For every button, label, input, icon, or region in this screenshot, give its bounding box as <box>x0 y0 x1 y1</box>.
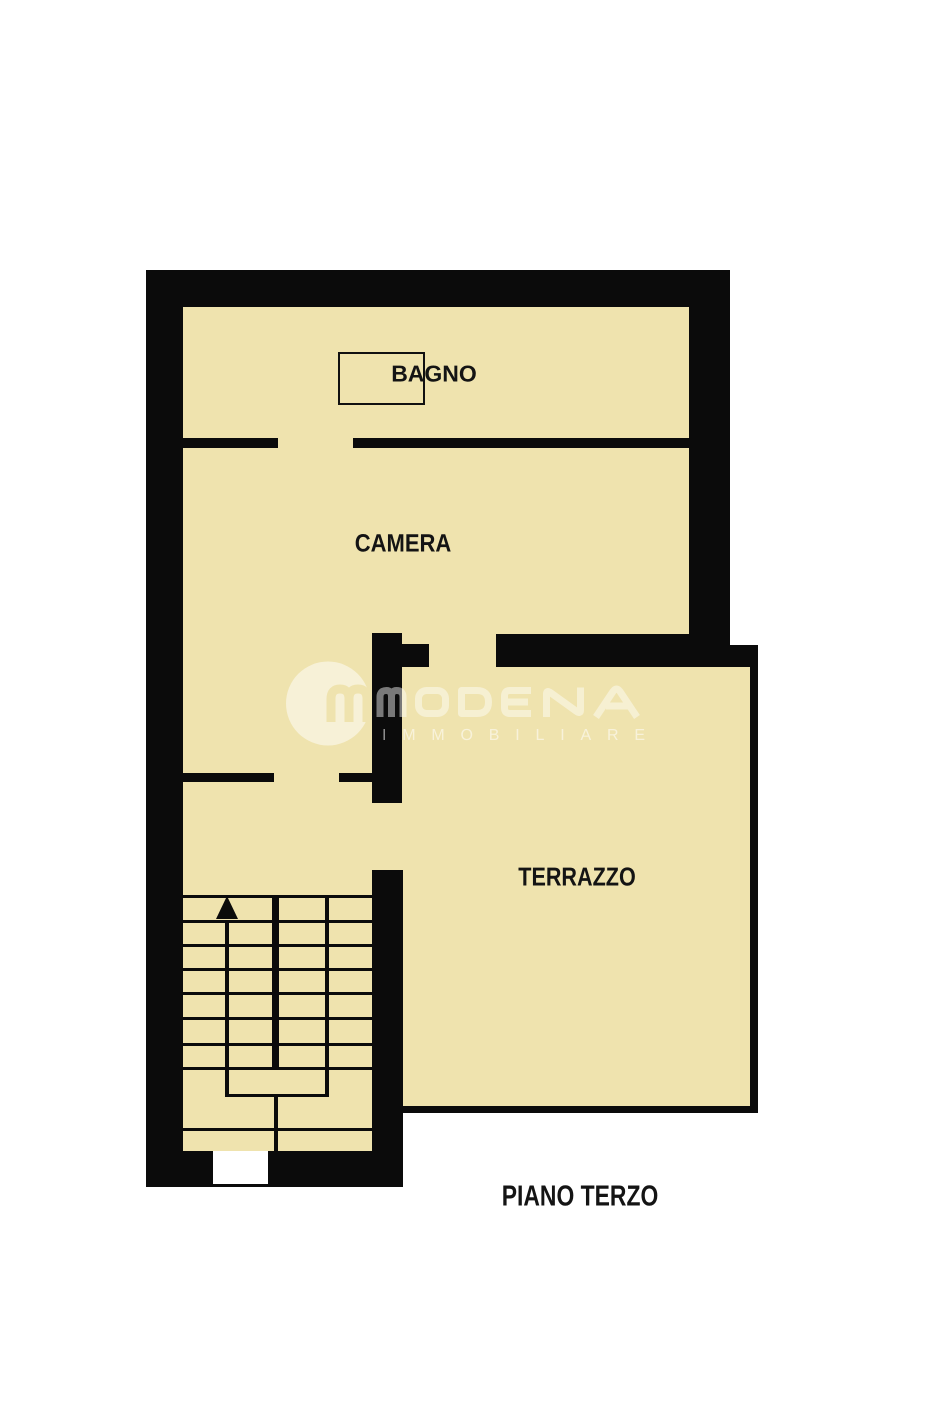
svg-text:IMMOBILIARE: IMMOBILIARE <box>382 727 645 744</box>
